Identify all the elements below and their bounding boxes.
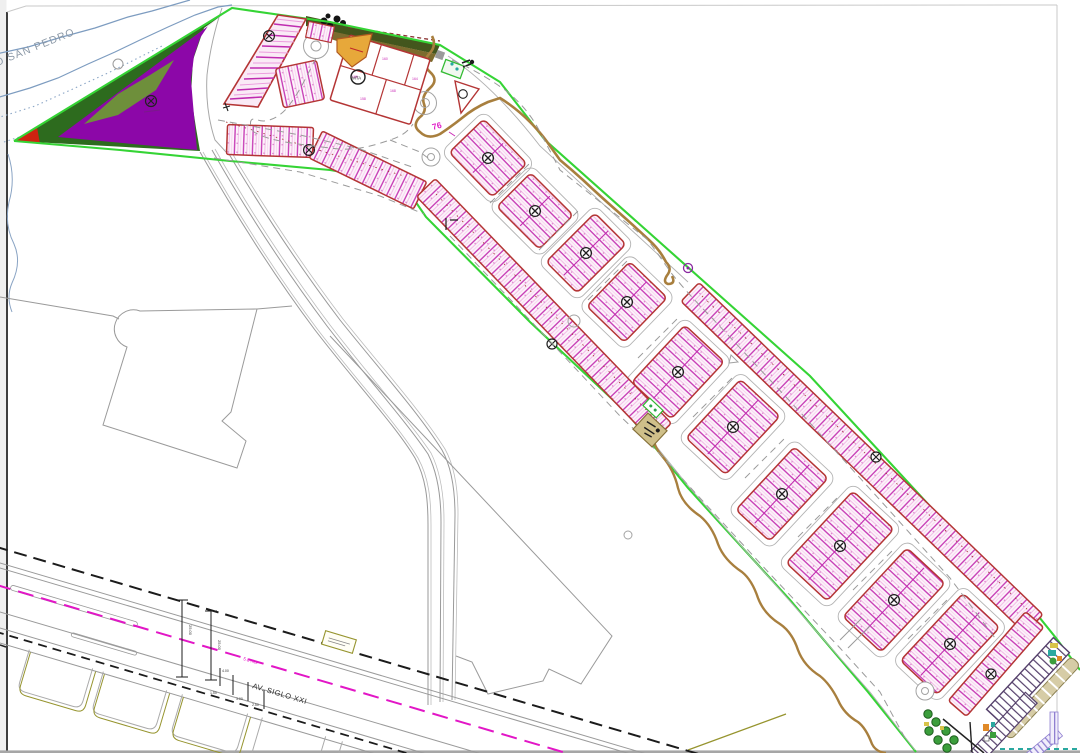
svg-text:164: 164 — [412, 77, 418, 81]
svg-text:2.50: 2.50 — [252, 703, 259, 707]
svg-text:158: 158 — [360, 97, 366, 101]
svg-text:4.00: 4.00 — [222, 669, 229, 673]
svg-text:3.00: 3.00 — [236, 697, 243, 701]
svg-text:25.00: 25.00 — [217, 640, 222, 651]
svg-text:25.00: 25.00 — [188, 625, 193, 636]
svg-text:168: 168 — [390, 89, 396, 93]
svg-text:MTA: MTA — [352, 76, 361, 81]
svg-text:1.50: 1.50 — [210, 691, 217, 695]
svg-text:160: 160 — [382, 57, 388, 61]
